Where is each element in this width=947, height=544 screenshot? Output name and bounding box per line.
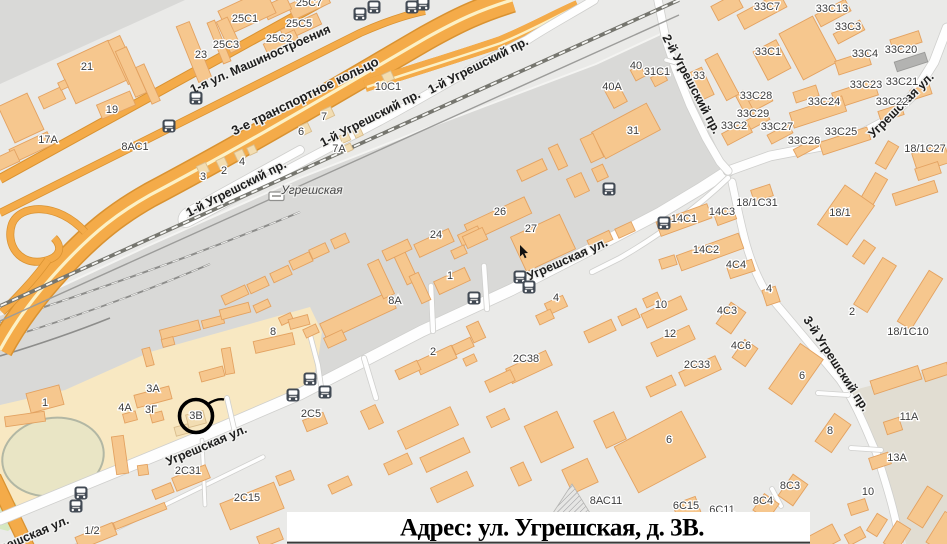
svg-text:25С5: 25С5 xyxy=(286,18,312,30)
svg-text:2С38: 2С38 xyxy=(513,353,539,365)
svg-text:6: 6 xyxy=(666,434,672,446)
svg-text:8С3: 8С3 xyxy=(780,480,800,492)
svg-text:40А: 40А xyxy=(602,81,622,93)
svg-text:33С24: 33С24 xyxy=(808,96,840,108)
svg-text:40: 40 xyxy=(630,60,642,72)
svg-text:Адрес: ул. Угрешская, д. 3В.: Адрес: ул. Угрешская, д. 3В. xyxy=(400,515,704,542)
svg-text:2: 2 xyxy=(849,306,855,318)
svg-text:11А: 11А xyxy=(900,411,919,423)
svg-text:8АС1: 8АС1 xyxy=(121,141,148,153)
svg-text:33С25: 33С25 xyxy=(825,126,857,138)
svg-text:31: 31 xyxy=(627,125,639,137)
svg-text:8А: 8А xyxy=(388,295,402,307)
svg-text:33С2: 33С2 xyxy=(721,120,747,132)
svg-text:10С1: 10С1 xyxy=(375,81,401,93)
svg-text:4С3: 4С3 xyxy=(717,305,737,317)
svg-text:33С21: 33С21 xyxy=(886,76,918,88)
svg-text:33С13: 33С13 xyxy=(816,3,848,15)
svg-text:25С7: 25С7 xyxy=(296,0,322,9)
svg-text:3А: 3А xyxy=(146,383,160,395)
svg-text:25С3: 25С3 xyxy=(213,39,239,51)
svg-text:18/1: 18/1 xyxy=(829,207,850,219)
svg-text:27: 27 xyxy=(525,223,537,235)
svg-text:19: 19 xyxy=(106,104,118,116)
svg-text:3Г: 3Г xyxy=(145,404,157,416)
svg-text:2С5: 2С5 xyxy=(301,408,321,420)
svg-text:3В: 3В xyxy=(189,410,202,422)
svg-text:4С4: 4С4 xyxy=(726,259,746,271)
svg-text:21: 21 xyxy=(81,61,93,73)
svg-text:25С2: 25С2 xyxy=(266,33,292,45)
svg-text:8С4: 8С4 xyxy=(753,495,773,507)
svg-text:1/2: 1/2 xyxy=(84,525,99,537)
svg-text:18/1С27: 18/1С27 xyxy=(904,143,946,155)
svg-text:4: 4 xyxy=(239,156,245,168)
svg-text:3: 3 xyxy=(200,171,206,183)
svg-text:31С1: 31С1 xyxy=(644,66,670,78)
svg-text:Угрешская: Угрешская xyxy=(280,183,343,197)
svg-text:2: 2 xyxy=(430,346,436,358)
svg-text:14С3: 14С3 xyxy=(709,206,735,218)
svg-text:33С4: 33С4 xyxy=(852,48,878,60)
svg-text:33С23: 33С23 xyxy=(850,79,882,91)
svg-text:33С27: 33С27 xyxy=(761,121,793,133)
svg-text:4: 4 xyxy=(766,283,772,295)
svg-text:33С28: 33С28 xyxy=(740,90,772,102)
svg-text:33С7: 33С7 xyxy=(754,1,780,13)
svg-text:25С1: 25С1 xyxy=(232,13,258,25)
svg-text:26: 26 xyxy=(494,206,506,218)
svg-text:1: 1 xyxy=(447,270,453,282)
svg-text:10: 10 xyxy=(862,486,874,498)
svg-text:4: 4 xyxy=(553,292,559,304)
svg-text:6: 6 xyxy=(298,126,304,138)
svg-text:8: 8 xyxy=(827,425,833,437)
svg-text:2С15: 2С15 xyxy=(234,492,260,504)
svg-text:4С6: 4С6 xyxy=(731,340,751,352)
svg-text:7А: 7А xyxy=(332,143,346,155)
svg-text:2С31: 2С31 xyxy=(175,465,201,477)
svg-text:18/1С10: 18/1С10 xyxy=(887,326,929,338)
svg-text:10: 10 xyxy=(655,299,667,311)
svg-text:17А: 17А xyxy=(38,134,58,146)
svg-text:12: 12 xyxy=(664,328,676,340)
svg-text:33С20: 33С20 xyxy=(885,44,917,56)
svg-text:2С33: 2С33 xyxy=(684,359,710,371)
svg-text:33С22: 33С22 xyxy=(876,96,908,108)
svg-text:6: 6 xyxy=(799,370,805,382)
svg-text:1: 1 xyxy=(42,397,48,409)
svg-text:33: 33 xyxy=(693,70,705,82)
svg-text:33С29: 33С29 xyxy=(737,108,769,120)
svg-text:8АС11: 8АС11 xyxy=(590,495,623,507)
svg-text:14С1: 14С1 xyxy=(671,213,697,225)
svg-text:23: 23 xyxy=(195,49,207,61)
svg-text:33С1: 33С1 xyxy=(755,46,781,58)
svg-text:6С15: 6С15 xyxy=(673,500,699,512)
svg-text:2: 2 xyxy=(221,165,227,177)
svg-text:4А: 4А xyxy=(118,402,132,414)
svg-text:14С2: 14С2 xyxy=(693,244,719,256)
svg-text:7: 7 xyxy=(321,111,327,123)
svg-text:24: 24 xyxy=(430,229,442,241)
svg-text:8: 8 xyxy=(270,326,276,338)
svg-text:13А: 13А xyxy=(887,452,907,464)
svg-text:33С26: 33С26 xyxy=(788,135,820,147)
svg-text:33С3: 33С3 xyxy=(835,21,861,33)
svg-text:18/1С31: 18/1С31 xyxy=(736,197,778,209)
